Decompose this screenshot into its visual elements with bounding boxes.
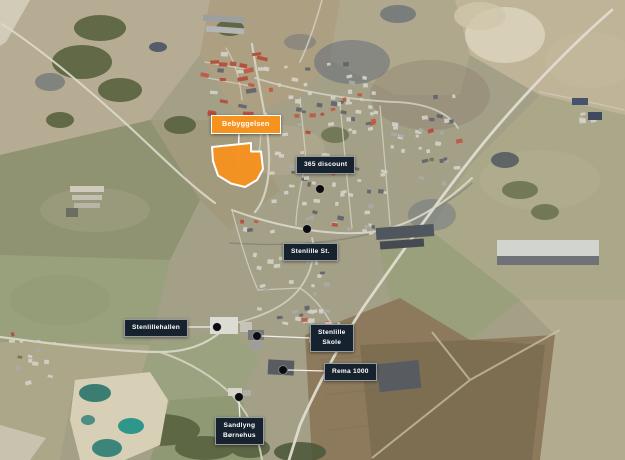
label-rema-1000: Rema 1000 [324, 363, 377, 381]
aerial-map[interactable] [0, 0, 625, 460]
bornehus-marker-dot[interactable] [235, 393, 244, 402]
map-viewport[interactable]: Bebyggelsen 365 discount Stenlille St. S… [0, 0, 625, 460]
sandpit-layer [70, 372, 168, 460]
label-stenlille-st: Stenlille St. [283, 243, 338, 261]
label-sandlyng-bornehus: Sandlyng Børnehus [215, 417, 264, 445]
hallen-marker-dot[interactable] [213, 323, 222, 332]
station-marker-dot[interactable] [303, 225, 312, 234]
label-stenlille-skole: Stenlille Skole [310, 324, 354, 352]
skole-marker-dot[interactable] [253, 332, 262, 341]
label-365-discount: 365 discount [296, 156, 355, 174]
label-stenlille-skole-line1: Stenlille [318, 328, 346, 338]
label-sandlyng-bornehus-line1: Sandlyng [223, 421, 256, 431]
rema-marker-dot[interactable] [279, 366, 288, 375]
label-bebyggelsen: Bebyggelsen [211, 115, 281, 134]
label-stenlillehallen: Stenlillehallen [124, 319, 188, 337]
label-sandlyng-bornehus-line2: Børnehus [223, 431, 256, 441]
discount-marker-dot[interactable] [316, 185, 325, 194]
label-stenlille-skole-line2: Skole [318, 338, 346, 348]
